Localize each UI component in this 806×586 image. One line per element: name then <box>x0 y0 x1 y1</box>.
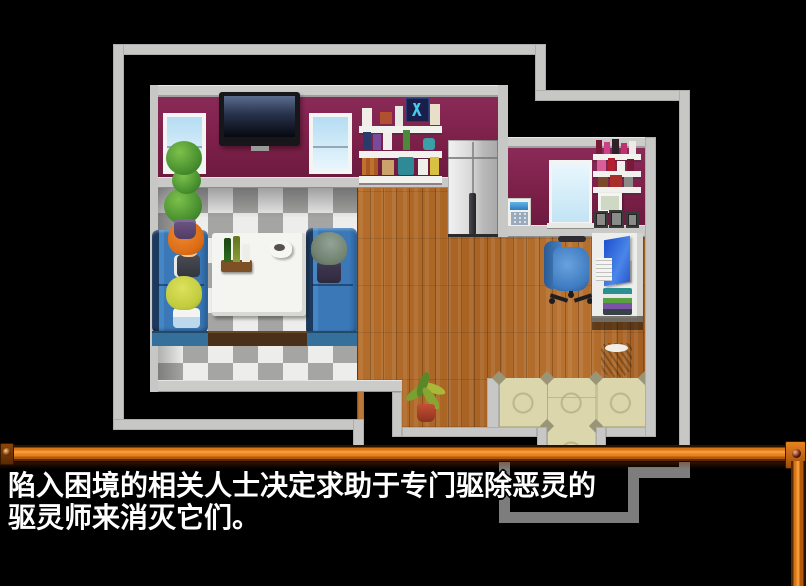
shelf-item <box>430 104 440 125</box>
shelf-item <box>403 130 410 150</box>
desk-shadow <box>592 316 643 330</box>
room-outline <box>596 427 606 447</box>
rivet-icon <box>792 449 801 458</box>
tv-mount <box>251 146 269 151</box>
room-outline <box>113 44 546 55</box>
entrance-walkway <box>547 378 596 447</box>
photo <box>629 215 636 225</box>
shelf-item <box>629 141 636 154</box>
character-blonde <box>166 276 202 310</box>
shelf-item <box>395 106 403 126</box>
dialogue-frame-side-bar <box>791 461 806 586</box>
poster-glyph <box>409 103 425 116</box>
wall-top <box>150 85 506 97</box>
waste-basket <box>601 343 632 377</box>
room-outline <box>679 90 690 461</box>
shelf-item <box>398 157 414 175</box>
window-sill <box>547 223 594 228</box>
character-orange-hair-body <box>174 255 200 277</box>
refrigerator <box>448 140 498 237</box>
shelf-item <box>430 157 439 175</box>
shelf-item <box>362 108 372 126</box>
character-gray-hair <box>311 232 347 265</box>
photo-frame <box>609 210 624 228</box>
keypad-screen <box>510 202 528 210</box>
cup-opening <box>274 244 285 251</box>
photo <box>612 213 621 225</box>
door-handle <box>469 193 476 235</box>
room-outline <box>353 419 364 447</box>
office-chair-armrest <box>558 236 586 242</box>
baseboard <box>150 380 402 392</box>
plant-pot <box>417 404 435 422</box>
shelf-item <box>383 133 392 150</box>
room-outline <box>113 419 364 430</box>
bottle <box>224 238 231 262</box>
void <box>364 392 392 447</box>
shelf-item <box>380 112 392 124</box>
topiary-pot <box>174 219 196 239</box>
shelf-item <box>624 177 633 187</box>
rivet-icon <box>3 448 11 456</box>
shelf-item <box>597 160 606 171</box>
topiary-foliage <box>166 141 202 175</box>
dialogue-frame-bar <box>0 445 806 462</box>
grid-window <box>549 160 592 225</box>
picture-art <box>601 196 619 210</box>
tv-screen <box>224 96 295 137</box>
shelf-item <box>362 158 378 175</box>
shelf-item <box>423 138 435 150</box>
shelf-item <box>598 177 608 187</box>
wall-tv <box>219 92 300 146</box>
shelf-item <box>382 160 394 175</box>
shelf-item <box>373 134 381 150</box>
keypad-panel <box>507 198 531 227</box>
coffee-cup <box>270 241 292 258</box>
door-base <box>448 234 498 237</box>
book-stack <box>603 288 632 315</box>
room-outline <box>392 392 402 437</box>
room-outline <box>537 427 547 447</box>
bottle <box>233 236 240 262</box>
shelf-item <box>604 142 610 154</box>
photo-frame <box>594 211 608 228</box>
wall-poster <box>406 98 429 122</box>
shelf-item <box>596 140 602 154</box>
room-outline <box>113 44 124 430</box>
shelf-item <box>418 159 428 175</box>
game-viewport: 陷入困境的相关人士决定求助于专门驱除恶灵的 驱灵师来消灭它们。 <box>0 0 806 586</box>
office-chair <box>553 247 589 291</box>
room-outline <box>535 90 690 101</box>
window <box>309 113 352 174</box>
shelf-item <box>617 161 625 171</box>
desk-accessory <box>596 258 612 281</box>
dialogue-text-line-2: 驱灵师来消灭它们。 <box>8 496 260 536</box>
shelf-item <box>627 159 634 171</box>
shelf-item <box>621 143 627 154</box>
room-outline <box>645 137 656 437</box>
character-blonde-body <box>173 308 200 328</box>
shelf-item <box>612 139 619 154</box>
photo <box>597 214 605 225</box>
shelf-item <box>608 158 615 171</box>
bottle <box>242 244 250 262</box>
lower-bench <box>152 331 208 346</box>
shelf-item <box>363 132 371 150</box>
bookshelf-board <box>359 176 442 183</box>
dialogue-frame-endcap <box>0 443 14 465</box>
room-outline-dim <box>499 512 639 523</box>
window-divider <box>313 146 348 148</box>
shelf-item <box>610 175 622 187</box>
keypad-buttons <box>511 212 528 225</box>
lower-bench <box>307 331 357 346</box>
bookshelf-board <box>359 126 442 133</box>
bench-seam <box>312 284 353 286</box>
photo-frame <box>626 212 639 228</box>
room-outline <box>402 427 537 437</box>
lower-table <box>208 331 307 346</box>
basket-contents <box>605 344 628 352</box>
